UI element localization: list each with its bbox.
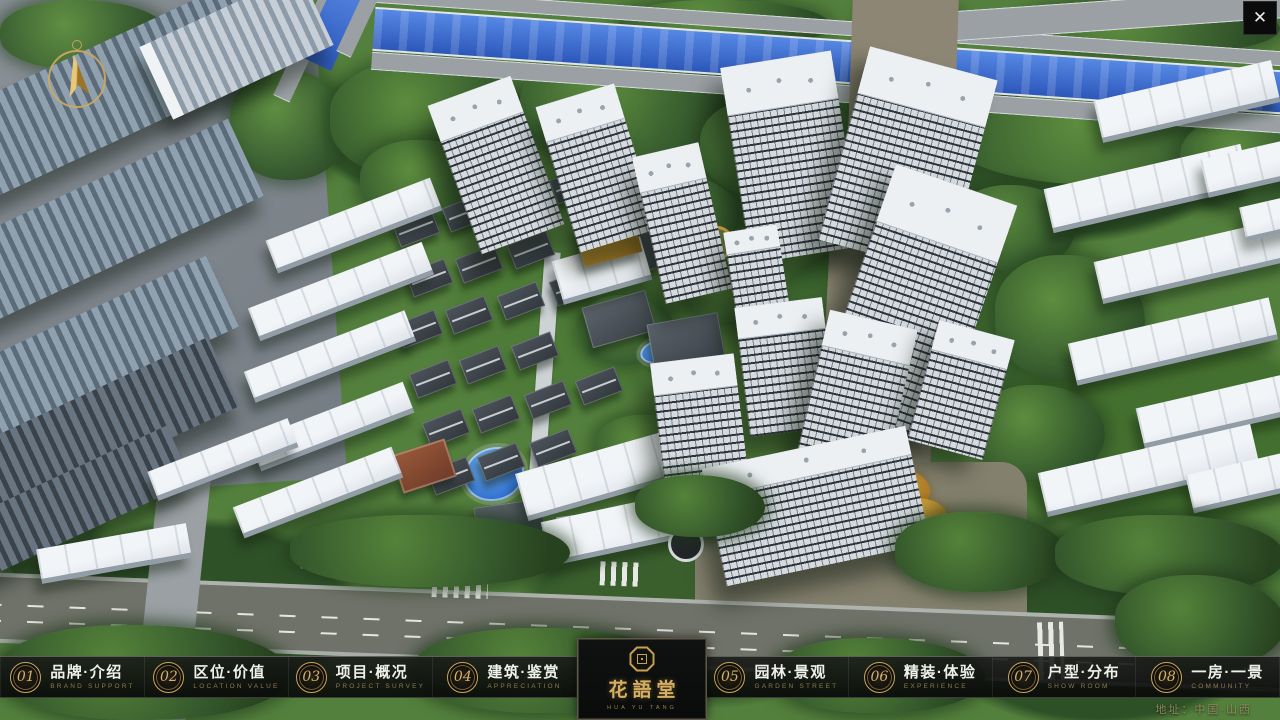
project-logo-title: 花語堂 xyxy=(608,675,680,702)
courtyard-house xyxy=(575,366,624,405)
tree-grove xyxy=(895,512,1065,592)
tree-grove xyxy=(290,515,570,587)
compass-icon xyxy=(48,50,106,108)
nav-title: 精装·体验 xyxy=(904,664,977,681)
nav-item-location-value[interactable]: 02 区位·价值LOCATION VALUE xyxy=(145,657,289,697)
nav-subtitle: GARDEN STREET xyxy=(754,683,838,690)
nav-number-badge: 01 xyxy=(10,662,41,693)
nav-subtitle: EXPERIENCE xyxy=(904,683,977,690)
nav-title: 建筑·鉴赏 xyxy=(487,664,561,681)
courtyard-house xyxy=(445,295,494,334)
app-window: ✕ 01 品牌·介绍BRAND SUPPORT 02 区位·价值LOCATION… xyxy=(0,0,1280,720)
nav-title: 品牌·介绍 xyxy=(50,664,134,681)
nav-item-garden-landscape[interactable]: 05 园林·景观GARDEN STREET xyxy=(704,657,849,697)
nav-number: 08 xyxy=(1158,669,1176,685)
project-address: 地址：中国·山西 xyxy=(1155,701,1252,717)
nav-subtitle: BRAND SUPPORT xyxy=(50,683,134,690)
nav-number-badge: 05 xyxy=(714,662,745,693)
nav-subtitle: PROJECT SURVEY xyxy=(336,683,425,690)
nav-item-brand-intro[interactable]: 01 品牌·介绍BRAND SUPPORT xyxy=(0,657,145,697)
nav-subtitle: COMMUNITY xyxy=(1191,683,1264,690)
project-logo-panel[interactable]: 花語堂 HUA YU TANG xyxy=(577,638,707,720)
nav-number-badge: 02 xyxy=(153,662,184,693)
courtyard-house xyxy=(459,345,508,384)
nav-number: 05 xyxy=(721,669,739,685)
nav-subtitle: LOCATION VALUE xyxy=(193,683,279,690)
nav-title: 园林·景观 xyxy=(754,664,838,681)
courtyard-house xyxy=(455,244,504,283)
nav-number-badge: 08 xyxy=(1151,662,1182,693)
courtyard-house xyxy=(497,281,546,320)
nav-title: 户型·分布 xyxy=(1048,664,1121,681)
close-button[interactable]: ✕ xyxy=(1243,1,1277,35)
tree-grove xyxy=(635,475,765,537)
logo-seal-icon xyxy=(629,646,655,672)
nav-number: 04 xyxy=(454,669,472,685)
nav-item-floorplan-distribution[interactable]: 07 户型·分布SHOW ROOM xyxy=(993,657,1137,697)
nav-number-badge: 03 xyxy=(296,662,327,693)
nav-subtitle: APPRECIATION xyxy=(487,683,561,690)
nav-title: 区位·价值 xyxy=(193,664,279,681)
crosswalk xyxy=(600,561,641,586)
nav-number-badge: 07 xyxy=(1008,662,1039,693)
nav-group-left: 01 品牌·介绍BRAND SUPPORT 02 区位·价值LOCATION V… xyxy=(0,657,577,697)
masterplan-3d-view[interactable] xyxy=(0,0,1280,720)
nav-group-right: 05 园林·景观GARDEN STREET 06 精装·体验EXPERIENCE… xyxy=(704,657,1280,697)
nav-number-badge: 04 xyxy=(447,662,478,693)
courtyard-house xyxy=(472,394,521,433)
nav-number: 02 xyxy=(160,669,178,685)
nav-item-one-room-one-view[interactable]: 08 一房·一景COMMUNITY xyxy=(1136,657,1280,697)
courtyard-house xyxy=(409,359,458,398)
compass-needle xyxy=(58,52,96,102)
nav-item-interior-experience[interactable]: 06 精装·体验EXPERIENCE xyxy=(849,657,993,697)
nav-number: 06 xyxy=(870,669,888,685)
nav-subtitle: SHOW ROOM xyxy=(1048,683,1121,690)
courtyard-house xyxy=(422,408,471,447)
nav-item-project-overview[interactable]: 03 项目·概况PROJECT SURVEY xyxy=(289,657,433,697)
nav-number: 01 xyxy=(17,669,35,685)
nav-number: 03 xyxy=(302,669,320,685)
project-logo-subtitle: HUA YU TANG xyxy=(607,705,677,711)
nav-title: 项目·概况 xyxy=(336,664,425,681)
nav-number: 07 xyxy=(1014,669,1032,685)
courtyard-house xyxy=(524,380,573,419)
nav-item-architecture[interactable]: 04 建筑·鉴赏APPRECIATION xyxy=(433,657,577,697)
nav-number-badge: 06 xyxy=(864,662,895,693)
nav-title: 一房·一景 xyxy=(1191,664,1264,681)
